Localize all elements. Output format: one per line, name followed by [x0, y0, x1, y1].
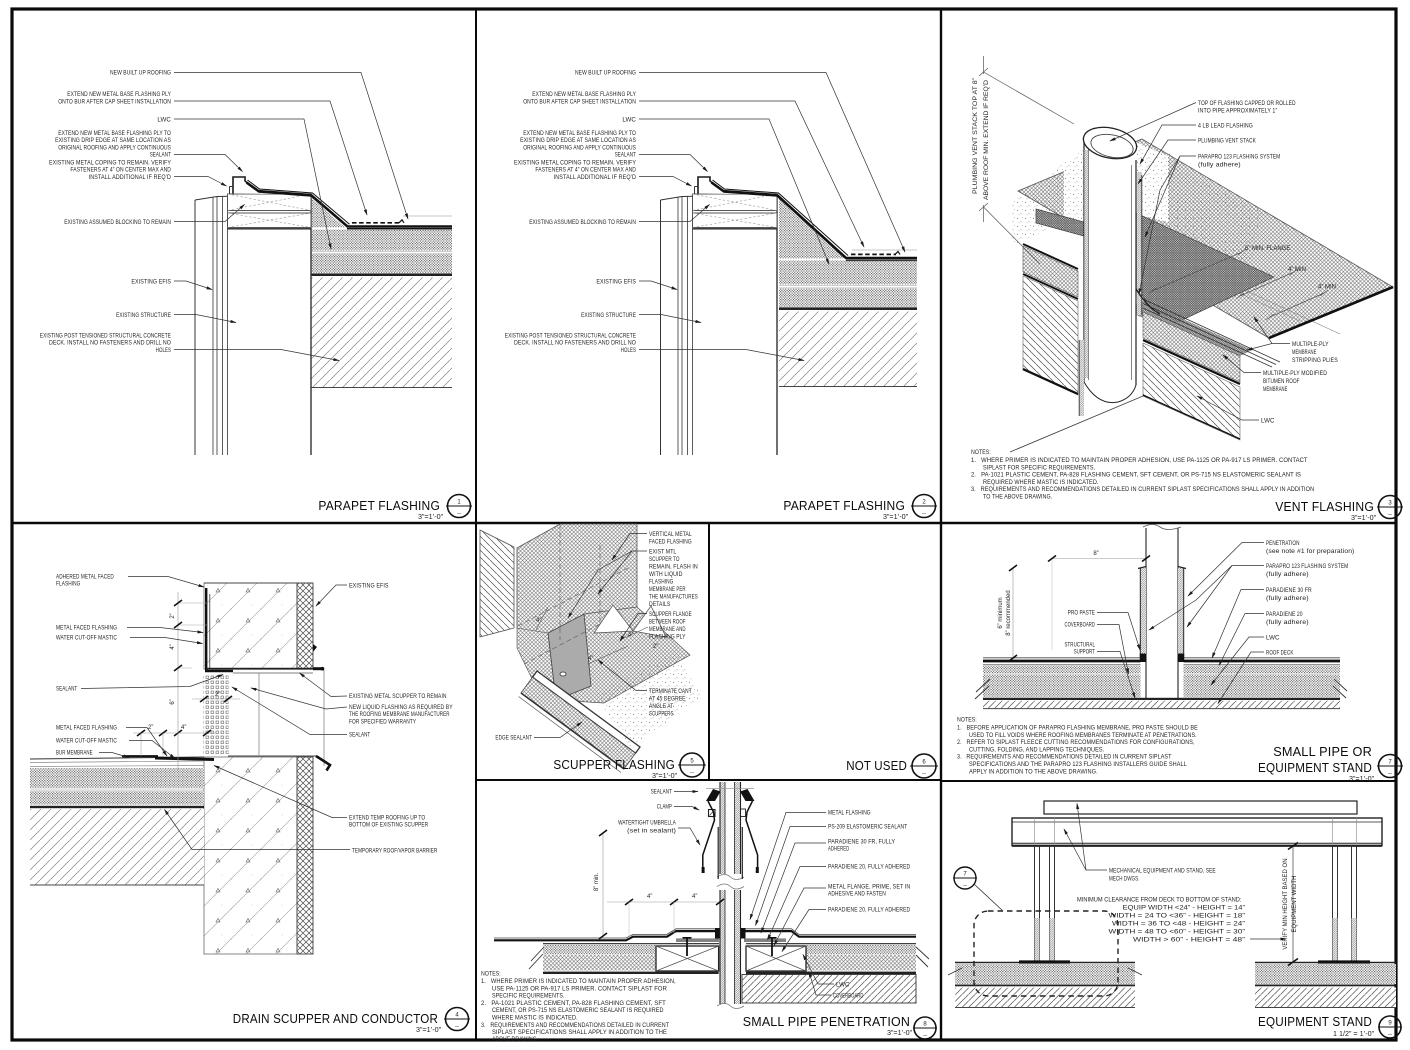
svg-text:(fully adhere): (fully adhere) [1266, 571, 1309, 578]
svg-text:--: -- [1388, 771, 1392, 777]
svg-text:WIDTH = 24 TO <36” - HEIGH: WIDTH = 24 TO <36” - HEIGHT = 18” [1109, 913, 1246, 920]
svg-text:EXISTING EFIS: EXISTING EFIS [349, 583, 389, 590]
svg-text:WIDTH = 36 TO <48 - HEIGHT: WIDTH = 36 TO <48 - HEIGHT = 24” [1112, 921, 1245, 928]
svg-text:AT 45 DEGREE: AT 45 DEGREE [649, 696, 686, 703]
svg-text:3”=1’-0”: 3”=1’-0” [1351, 513, 1377, 522]
svg-text:4” MIN: 4” MIN [1318, 285, 1336, 291]
svg-text:INSTALL ADDITIONAL IF REQ’D: INSTALL ADDITIONAL IF REQ’D [89, 174, 172, 181]
svg-text:TOP OF FLASHING CAPPED OR ROLL: TOP OF FLASHING CAPPED OR ROLLED [1198, 100, 1296, 107]
svg-text:TEMPORARY ROOF/VAPOR BARRIER: TEMPORARY ROOF/VAPOR BARRIER [352, 848, 438, 855]
svg-text:(see note #1 for preparation): (see note #1 for preparation) [1266, 548, 1354, 555]
svg-text:EQUIPMENT WIDTH: EQUIPMENT WIDTH [1292, 876, 1298, 933]
svg-text:2. PA-1021 PLASTIC CEMENT, P: 2. PA-1021 PLASTIC CEMENT, PA-828 FLASHI… [481, 1000, 666, 1007]
svg-text:(set in sealant): (set in sealant) [627, 828, 676, 835]
svg-text:CUTTING, FOLDING, AND LAPPING: CUTTING, FOLDING, AND LAPPING TECHNIQUES… [969, 746, 1104, 753]
svg-text:LWC: LWC [1261, 418, 1275, 425]
svg-text:WATERTIGHT UMBRELLA: WATERTIGHT UMBRELLA [618, 820, 676, 827]
svg-text:--: -- [963, 883, 967, 889]
svg-text:(fully adhere): (fully adhere) [1266, 595, 1309, 602]
svg-text:SCUPPER FLANGE: SCUPPER FLANGE [649, 611, 692, 618]
svg-text:4”: 4” [628, 633, 633, 639]
svg-text:MEMBRANE PER: MEMBRANE PER [649, 586, 686, 593]
svg-text:4”: 4” [181, 725, 186, 731]
svg-text:3”=1’-0”: 3”=1’-0” [883, 512, 909, 521]
svg-text:--: -- [923, 1033, 927, 1039]
svg-text:PARAPET FLASHING: PARAPET FLASHING [318, 498, 440, 513]
svg-text:4”: 4” [647, 894, 652, 900]
svg-text:EXISTING STRUCTURE: EXISTING STRUCTURE [116, 312, 171, 319]
svg-text:PARADIENE 20: PARADIENE 20 [1266, 611, 1303, 618]
svg-text:BUR MEMBRANE: BUR MEMBRANE [56, 750, 93, 757]
svg-text:2”: 2” [170, 613, 176, 618]
svg-text:NOTES:: NOTES: [481, 971, 501, 978]
svg-text:CEMENT, OR PS-715 NS ELASTOMER: CEMENT, OR PS-715 NS ELASTOMERIC SEALANT… [492, 1007, 664, 1014]
svg-text:BOTTOM OF EXISTING SCUPPER: BOTTOM OF EXISTING SCUPPER [349, 822, 429, 829]
svg-text:SEALANT: SEALANT [150, 152, 171, 159]
svg-text:3. REQUIREMENTS AND RECOMMEN: 3. REQUIREMENTS AND RECOMMENDATIONS DETA… [971, 486, 1314, 493]
svg-text:SCUPPERS: SCUPPERS [649, 711, 673, 718]
svg-text:PARADIENE 20, FULLY ADHERED: PARADIENE 20, FULLY ADHERED [828, 907, 911, 914]
svg-text:2”: 2” [653, 644, 658, 650]
svg-text:4”: 4” [170, 644, 176, 649]
svg-text:4”: 4” [692, 894, 697, 900]
svg-text:MULTIPLE-PLY MODIFIED: MULTIPLE-PLY MODIFIED [1263, 370, 1327, 377]
svg-text:REQUIRED WHERE MASTIC IS INDIC: REQUIRED WHERE MASTIC IS INDICATED. [983, 479, 1099, 486]
svg-text:--: -- [1388, 1032, 1392, 1038]
svg-text:SEALANT: SEALANT [651, 789, 672, 796]
svg-text:1. BEFORE APPLICATION OF PAR: 1. BEFORE APPLICATION OF PARAPRO FLASHIN… [957, 725, 1198, 732]
svg-text:4 LB LEAD FLASHING: 4 LB LEAD FLASHING [1198, 123, 1253, 130]
svg-text:MECHANICAL EQUIPMENT AND STAND: MECHANICAL EQUIPMENT AND STAND, SEE [1109, 868, 1216, 875]
svg-text:ONTO BUR AFTER CAP SHEET INSTA: ONTO BUR AFTER CAP SHEET INSTALLATION [58, 98, 171, 105]
svg-text:1. WHERE PRIMER IS INDICATED: 1. WHERE PRIMER IS INDICATED TO MAINTAIN… [481, 978, 676, 985]
svg-text:FLASHING: FLASHING [56, 581, 80, 588]
svg-text:USE PA-1125 OR PA-917 LS PRIME: USE PA-1125 OR PA-917 LS PRIMER. CONTACT… [492, 985, 667, 992]
svg-text:REMAIN, FLASH IN: REMAIN, FLASH IN [649, 564, 698, 571]
svg-text:8”: 8” [1093, 551, 1098, 557]
svg-text:PARADIENE 30 FR, FULLY: PARADIENE 30 FR, FULLY [828, 839, 895, 846]
svg-text:PARAPRO 123 FLASHING SYSTEM: PARAPRO 123 FLASHING SYSTEM [1198, 154, 1280, 161]
svg-text:DRAIN SCUPPER AND CONDUCTOR: DRAIN SCUPPER AND CONDUCTOR [233, 1011, 438, 1026]
svg-text:2”: 2” [215, 692, 220, 698]
svg-text:NOTES:: NOTES: [971, 449, 991, 456]
svg-text:3. REQUIREMENTS AND RECOMMEN: 3. REQUIREMENTS AND RECOMMENDATIONS DETA… [957, 754, 1172, 761]
svg-text:FASTENERS AT 4” ON CENTER MAX: FASTENERS AT 4” ON CENTER MAX AND [70, 167, 171, 174]
svg-text:NOTES:: NOTES: [957, 717, 977, 724]
svg-text:PARADIENE 30 FR: PARADIENE 30 FR [1266, 587, 1312, 594]
svg-text:MEMBRANE AND: MEMBRANE AND [649, 626, 686, 633]
svg-text:ANGLE AT: ANGLE AT [649, 703, 673, 710]
svg-text:COVERBOARD: COVERBOARD [833, 993, 864, 1000]
svg-text:MULTIPLE-PLY: MULTIPLE-PLY [1292, 341, 1329, 348]
svg-text:EXISTING DRIP EDGE AT SAME LOC: EXISTING DRIP EDGE AT SAME LOCATION AS [55, 137, 171, 144]
svg-text:SEALANT: SEALANT [56, 686, 77, 693]
svg-text:--: -- [922, 771, 926, 777]
svg-text:INTO PIPE APPROXIMATELY 1”: INTO PIPE APPROXIMATELY 1” [1198, 108, 1277, 115]
svg-text:EXISTING EFIS: EXISTING EFIS [131, 279, 171, 286]
svg-text:3. REQUIREMENTS AND RECOMMEN: 3. REQUIREMENTS AND RECOMMENDATIONS DETA… [481, 1022, 669, 1029]
svg-text:ORIGINAL ROOFING AND APPLY CON: ORIGINAL ROOFING AND APPLY CONTINUOUS [58, 144, 171, 151]
svg-text:WHERE MASTIC IS INDICATED.: WHERE MASTIC IS INDICATED. [492, 1015, 578, 1022]
svg-text:EDGE SEALANT: EDGE SEALANT [495, 735, 532, 742]
svg-text:EXISTING ASSUMED BLOCKING TO R: EXISTING ASSUMED BLOCKING TO REMAIN [64, 219, 171, 226]
svg-text:EQUIPMENT STAND: EQUIPMENT STAND [1258, 760, 1372, 775]
svg-text:6” MIN. FLANGE: 6” MIN. FLANGE [1245, 246, 1290, 252]
svg-text:2. REFER TO SIPLAST FLEECE C: 2. REFER TO SIPLAST FLEECE CUTTING RECOM… [957, 739, 1195, 746]
svg-text:3”=1’-0”: 3”=1’-0” [652, 771, 678, 780]
svg-text:--: -- [457, 511, 461, 517]
svg-text:3”=1’-0”: 3”=1’-0” [1349, 774, 1375, 783]
svg-text:DETAILS: DETAILS [649, 601, 670, 608]
svg-text:VERTICAL METAL: VERTICAL METAL [649, 531, 692, 538]
svg-text:2. PA-1021 PLASTIC CEMENT, P: 2. PA-1021 PLASTIC CEMENT, PA-828 FLASHI… [971, 472, 1301, 479]
svg-text:LWC: LWC [157, 117, 171, 124]
svg-text:8” min.: 8” min. [594, 873, 600, 892]
svg-text:(fully adhere): (fully adhere) [1266, 619, 1309, 626]
svg-text:EQUIP WIDTH <24” - HEIGHT =: EQUIP WIDTH <24” - HEIGHT = 14” [1123, 905, 1246, 912]
svg-text:VERIFY MIN HEIGHT BASED ON: VERIFY MIN HEIGHT BASED ON [1283, 858, 1289, 949]
svg-text:PLUMBING VENT STACK: PLUMBING VENT STACK [1198, 138, 1257, 145]
svg-text:3”=1’-0”: 3”=1’-0” [887, 1028, 913, 1037]
svg-text:VENT FLASHING: VENT FLASHING [1275, 499, 1374, 514]
svg-text:SPECIFIC REQUIREMENTS.: SPECIFIC REQUIREMENTS. [492, 993, 565, 1000]
svg-text:PARAPRO 123 FLASHING SYSTEM: PARAPRO 123 FLASHING SYSTEM [1266, 563, 1348, 570]
svg-text:APPLY IN ADDITION TO THE ABOVE: APPLY IN ADDITION TO THE ABOVE DRAWING. [969, 768, 1098, 775]
svg-text:SCUPPER FLASHING: SCUPPER FLASHING [553, 757, 675, 772]
svg-text:--: -- [455, 1024, 459, 1030]
svg-text:PS-209 ELASTOMERIC SEALANT: PS-209 ELASTOMERIC SEALANT [828, 824, 907, 831]
svg-text:FACED FLASHING: FACED FLASHING [649, 539, 692, 546]
svg-text:LWC: LWC [1266, 635, 1280, 642]
svg-text:ADHERED: ADHERED [828, 846, 850, 853]
svg-text:4” MIN: 4” MIN [1288, 267, 1306, 273]
svg-text:PARADIENE 20, FULLY ADHERED: PARADIENE 20, FULLY ADHERED [828, 864, 911, 871]
svg-text:3”=1’-0”: 3”=1’-0” [418, 512, 444, 521]
svg-text:WIDTH = 48 TO <60” - HEIGH: WIDTH = 48 TO <60” - HEIGHT = 30” [1109, 929, 1246, 936]
svg-text:SCUPPER TO: SCUPPER TO [649, 556, 680, 563]
svg-text:MEMBRANE: MEMBRANE [1292, 349, 1316, 356]
svg-text:4”: 4” [536, 618, 541, 624]
svg-text:LWC: LWC [836, 982, 850, 989]
svg-text:6” minimum: 6” minimum [998, 597, 1004, 628]
svg-text:--: -- [1388, 512, 1392, 518]
svg-text:PLUMBING VENT STACK TOP AT 8”: PLUMBING VENT STACK TOP AT 8” [973, 78, 979, 194]
svg-text:CLAMP: CLAMP [657, 804, 672, 811]
svg-text:WATER CUT-OFF MASTIC: WATER CUT-OFF MASTIC [56, 635, 117, 642]
svg-text:FLASHING: FLASHING [649, 579, 673, 586]
svg-text:PARAPET FLASHING: PARAPET FLASHING [783, 498, 905, 513]
svg-text:MINIMUM CLEARANCE FROM DECK TO: MINIMUM CLEARANCE FROM DECK TO BOTTOM OF… [1077, 897, 1242, 904]
svg-text:MEMBRANE: MEMBRANE [1263, 386, 1287, 393]
svg-text:MECH DWGS.: MECH DWGS. [1109, 876, 1140, 883]
svg-text:THE MANUFACTURES: THE MANUFACTURES [649, 594, 698, 601]
svg-text:STRUCTURAL: STRUCTURAL [1065, 642, 1096, 649]
svg-text:WIDTH > 60” - HEIGHT = 4: WIDTH > 60” - HEIGHT = 48” [1133, 937, 1245, 944]
svg-text:ABOVE ROOF MIN. EXTEND IF REQ: ABOVE ROOF MIN. EXTEND IF REQ’D [984, 79, 990, 200]
svg-text:FLASHING PLY: FLASHING PLY [649, 634, 686, 641]
svg-text:EQUIPMENT STAND: EQUIPMENT STAND [1258, 1014, 1372, 1029]
svg-text:WATER CUT-OFF MASTIC: WATER CUT-OFF MASTIC [56, 738, 117, 745]
svg-text:METAL FLANGE, PRIME, SET IN: METAL FLANGE, PRIME, SET IN [828, 884, 910, 891]
svg-text:8” recommended: 8” recommended [1006, 590, 1012, 635]
svg-text:BETWEEN ROOF: BETWEEN ROOF [649, 619, 686, 626]
svg-text:EXTEND TEMP ROOFING UP TO: EXTEND TEMP ROOFING UP TO [349, 815, 425, 822]
svg-text:4”: 4” [588, 656, 593, 662]
svg-text:STRIPPING PLIES: STRIPPING PLIES [1292, 357, 1338, 364]
svg-text:1 1/2” = 1’-0”: 1 1/2” = 1’-0” [1333, 1029, 1375, 1038]
svg-text:TERMINATE CANT: TERMINATE CANT [649, 688, 692, 695]
svg-text:EXTEND NEW METAL BASE FLASHING: EXTEND NEW METAL BASE FLASHING PLY [67, 91, 171, 98]
svg-text:SMALL PIPE OR: SMALL PIPE OR [1273, 744, 1372, 759]
svg-text:DECK. INSTALL NO FASTENERS AN: DECK. INSTALL NO FASTENERS AND DRILL NO [49, 340, 171, 347]
svg-text:6”: 6” [170, 699, 176, 704]
svg-text:COVERBOARD: COVERBOARD [1065, 622, 1096, 629]
svg-text:NOT USED: NOT USED [846, 758, 907, 773]
svg-text:--: -- [690, 770, 694, 776]
svg-text:--: -- [922, 511, 926, 517]
svg-text:METAL FLASHING: METAL FLASHING [828, 810, 871, 817]
svg-text:USED TO FILL VOIDS WHERE ROOFI: USED TO FILL VOIDS WHERE ROOFING MEMBRAN… [969, 732, 1197, 739]
svg-text:EXISTING METAL SCUPPER TO REMA: EXISTING METAL SCUPPER TO REMAIN [349, 693, 447, 700]
svg-text:THE ROOFING MEMBRANE MANUFACTU: THE ROOFING MEMBRANE MANUFACTURER [349, 711, 450, 718]
svg-text:TO THE ABOVE DRAWING.: TO THE ABOVE DRAWING. [983, 494, 1052, 501]
svg-text:FOR SPECIFIED WARRANTY: FOR SPECIFIED WARRANTY [349, 718, 416, 725]
svg-text:NEW BUILT UP ROOFING: NEW BUILT UP ROOFING [110, 70, 171, 77]
svg-text:WITH LIQUID: WITH LIQUID [649, 571, 683, 578]
svg-text:HOLES: HOLES [156, 347, 171, 354]
svg-text:NEW LIQUID FLASHING AS REQUIRE: NEW LIQUID FLASHING AS REQUIRED BY [349, 704, 453, 711]
svg-text:(fully adhere): (fully adhere) [1198, 162, 1241, 169]
svg-text:EXTEND NEW METAL BASE FLASHING: EXTEND NEW METAL BASE FLASHING PLY TO [58, 130, 171, 137]
svg-text:METAL FACED FLASHING: METAL FACED FLASHING [56, 725, 117, 732]
svg-text:ABOVE DRAWING.: ABOVE DRAWING. [492, 1036, 538, 1043]
svg-text:3”=1’-0”: 3”=1’-0” [416, 1025, 442, 1034]
svg-text:SUPPORT: SUPPORT [1074, 649, 1095, 656]
svg-text:PRO PASTE: PRO PASTE [1068, 610, 1095, 617]
svg-text:1. WHERE PRIMER IS INDICATED: 1. WHERE PRIMER IS INDICATED TO MAINTAIN… [971, 457, 1308, 464]
svg-text:SPECIFICATIONS AND THE PARAPRO: SPECIFICATIONS AND THE PARAPRO 123 FLASH… [969, 761, 1187, 768]
svg-text:METAL FACED FLASHING: METAL FACED FLASHING [56, 625, 117, 632]
svg-text:BITUMEN ROOF: BITUMEN ROOF [1263, 378, 1300, 385]
svg-text:SEALANT: SEALANT [349, 732, 370, 739]
svg-text:EXISTING POST TENSIONED STRUCT: EXISTING POST TENSIONED STRUCTURAL CONCR… [40, 333, 171, 340]
svg-text:PENETRATION: PENETRATION [1266, 540, 1300, 547]
svg-text:EXISTING METAL COPING TO REMAI: EXISTING METAL COPING TO REMAIN. VERIFY [49, 160, 171, 167]
svg-text:SMALL PIPE PENETRATION: SMALL PIPE PENETRATION [743, 1014, 910, 1029]
svg-text:SIPLAST SPECIFICATIONS SHALL A: SIPLAST SPECIFICATIONS SHALL APPLY IN AD… [492, 1029, 667, 1036]
svg-text:SIPLAST FOR SPECIFIC REQUIREME: SIPLAST FOR SPECIFIC REQUIREMENTS. [983, 464, 1095, 471]
svg-text:ROOF DECK: ROOF DECK [1266, 650, 1294, 657]
svg-text:ADHERED METAL FACED: ADHERED METAL FACED [56, 574, 114, 581]
svg-text:ADHESIVE AND FASTEN: ADHESIVE AND FASTEN [828, 891, 886, 898]
svg-text:EXIST MTL: EXIST MTL [649, 549, 677, 556]
